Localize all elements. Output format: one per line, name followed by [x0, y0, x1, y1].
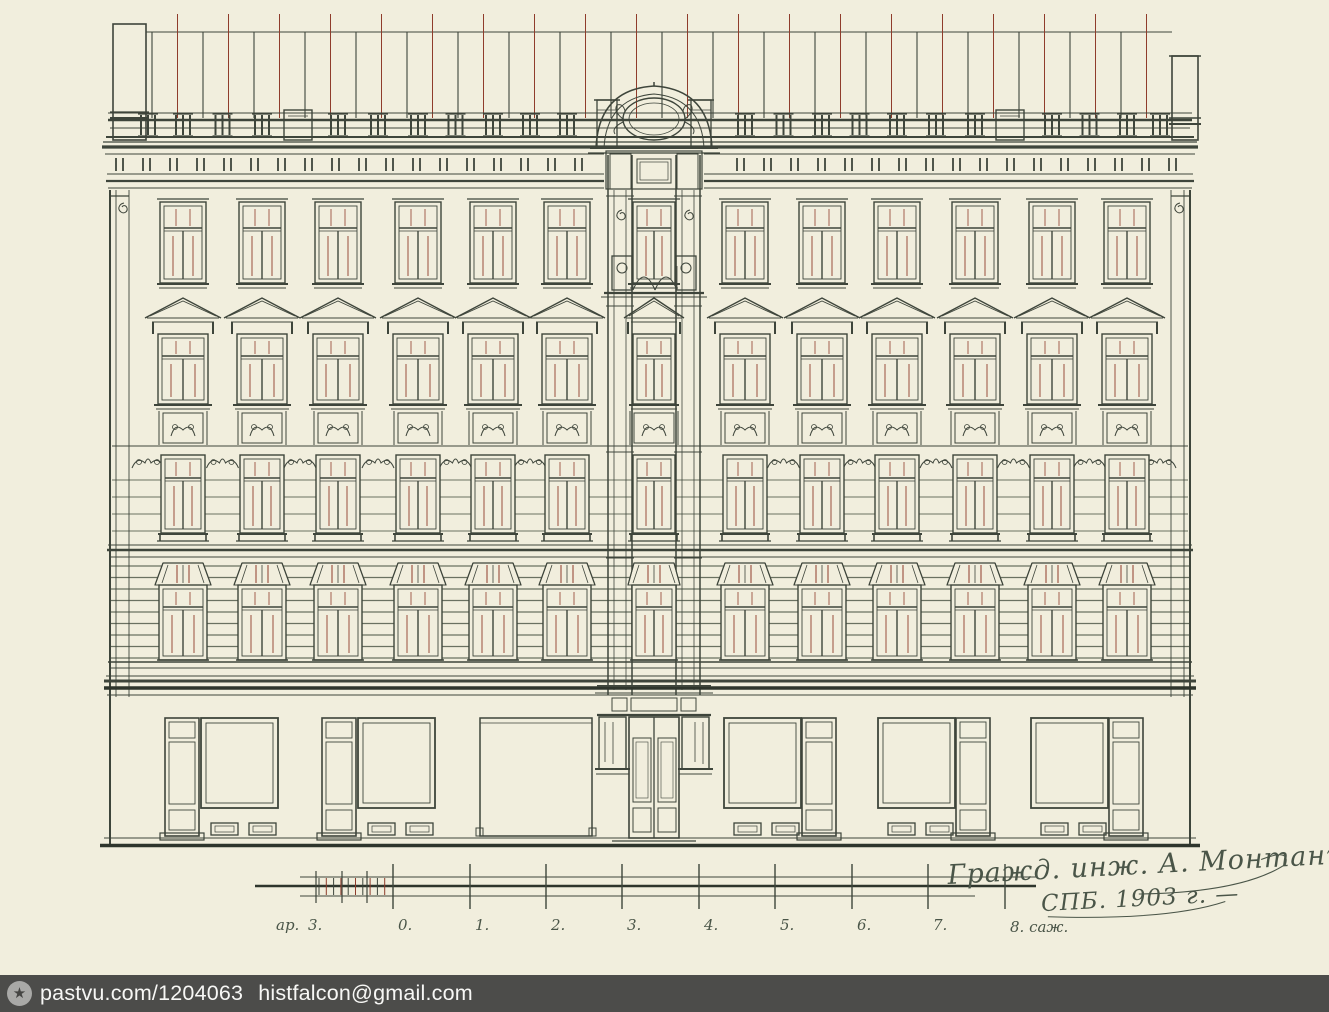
- scale-tick-label: 0.: [398, 916, 412, 934]
- scale-left-unit-label: ар.: [276, 916, 299, 934]
- scale-left-value-label: 3.: [308, 916, 322, 934]
- scale-tick-label: 7.: [933, 916, 947, 934]
- scanned-drawing-page: ар.3.0.1.2.3.4.5.6.7.8. саж.Гражд. инж. …: [0, 0, 1329, 1012]
- building-elevation-svg: ар.3.0.1.2.3.4.5.6.7.8. саж.Гражд. инж. …: [0, 0, 1329, 975]
- scale-tick-label: 6.: [857, 916, 871, 934]
- scale-tick-label: 4.: [703, 916, 718, 934]
- star-icon: ★: [7, 981, 32, 1006]
- scale-tick-label: 1.: [475, 916, 489, 934]
- watermark-bar: ★ pastvu.com/1204063 histfalcon@gmail.co…: [0, 975, 1329, 1012]
- scale-end-label: 8. саж.: [1010, 918, 1068, 936]
- watermark-email-text: histfalcon@gmail.com: [258, 981, 473, 1006]
- scale-tick-label: 3.: [627, 916, 641, 934]
- scale-tick-label: 5.: [780, 916, 794, 934]
- drawing-paper: ар.3.0.1.2.3.4.5.6.7.8. саж.Гражд. инж. …: [0, 0, 1329, 975]
- scale-tick-label: 2.: [550, 916, 565, 934]
- watermark-site-text: pastvu.com/1204063: [40, 981, 243, 1006]
